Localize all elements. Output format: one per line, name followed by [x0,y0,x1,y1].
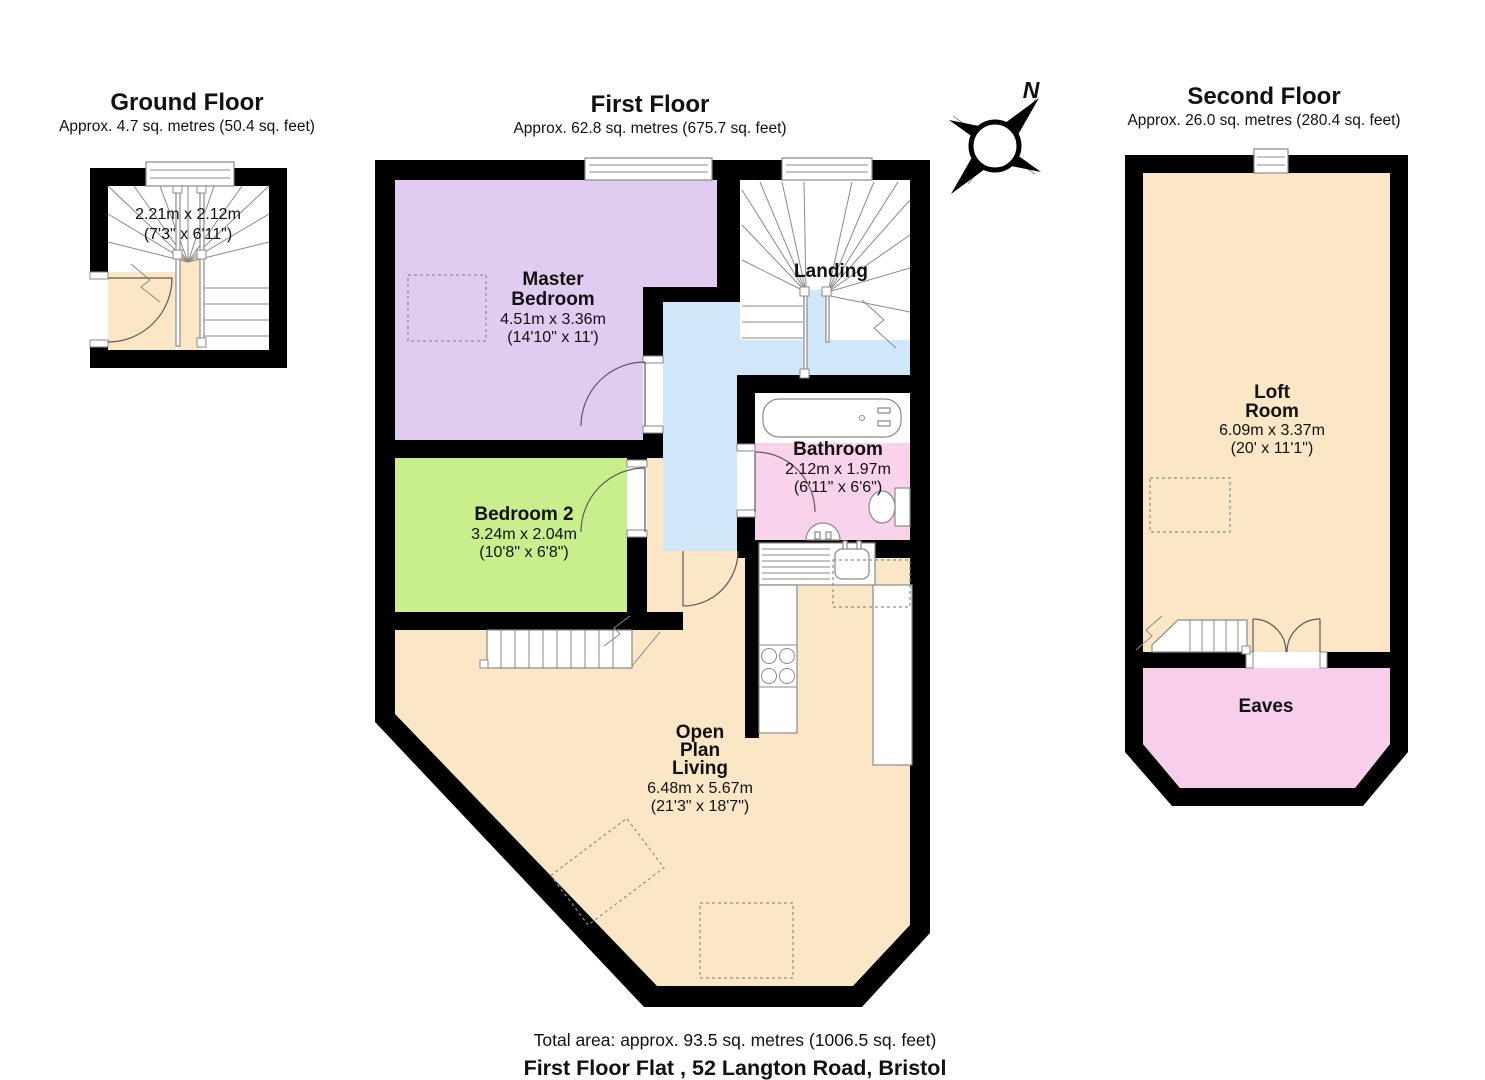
eaves-label: Eaves [1239,696,1294,717]
eaves-divider-wall [1143,652,1390,668]
compass-circle [971,122,1019,170]
bedroom2-label: Bedroom 2 [474,504,573,525]
floorplan-page: Ground Floor Approx. 4.7 sq. metres (50.… [0,0,1485,1080]
second-floor-plan: Second Floor Approx. 26.0 sq. metres (28… [1125,83,1408,806]
master-bedroom-label-1: Master [522,269,584,290]
open-plan-label-3: Living [672,758,728,779]
master-bedroom-dims-ft: (14'10" x 11') [507,329,599,346]
first-floor-area: Approx. 62.8 sq. metres (675.7 sq. feet) [513,120,786,137]
bedroom2-dims-m: 3.24m x 2.04m [471,526,577,543]
loft-room-label-1: Loft [1254,382,1291,403]
compass-north-label: N [1023,77,1040,103]
bathtub [763,399,901,437]
address-text: First Floor Flat , 52 Langton Road, Bris… [524,1056,947,1080]
ground-hall-floor [108,272,176,350]
floorplan-canvas: Ground Floor Approx. 4.7 sq. metres (50.… [0,0,1485,1080]
master-bedroom-dims-m: 4.51m x 3.36m [500,311,606,328]
loft-room-label-2: Room [1245,401,1299,422]
hallway-floor [663,287,740,551]
eaves-floor [1143,668,1390,788]
kitchen-sink-unit [759,541,875,585]
ground-window [146,162,234,186]
first-floor-title: First Floor [591,91,710,118]
total-area-text: Total area: approx. 93.5 sq. metres (100… [534,1030,937,1050]
master-bedroom-label-2: Bedroom [511,289,594,310]
ground-stair-walkline [178,258,202,350]
ground-floor-plan: Ground Floor Approx. 4.7 sq. metres (50.… [59,89,315,368]
first-floor-window-master [585,158,712,180]
bathroom-dims-ft: (6'11" x 6'6") [794,479,882,496]
bathroom-dims-m: 2.12m x 1.97m [785,461,891,478]
bathroom-label: Bathroom [793,439,883,460]
ground-floor-area: Approx. 4.7 sq. metres (50.4 sq. feet) [59,118,315,135]
ground-stair-dims-ft: (7'3" x 6'11") [144,226,232,243]
second-floor-area: Approx. 26.0 sq. metres (280.4 sq. feet) [1127,112,1400,129]
loft-room-dims-m: 6.09m x 3.37m [1219,422,1325,439]
open-plan-dims-m: 6.48m x 5.67m [647,780,753,797]
open-plan-dims-ft: (21'3" x 18'7") [651,798,749,815]
ground-floor-title: Ground Floor [110,89,263,116]
second-floor-window [1254,149,1288,173]
kitchen-hob-counter [759,585,797,733]
kitchen-right-counter [873,585,912,765]
second-floor-title: Second Floor [1187,83,1340,110]
first-floor-window-landing [782,158,872,180]
bedroom2-dims-ft: (10'8" x 6'8") [479,544,569,561]
ground-stair-dims-m: 2.21m x 2.12m [135,206,241,223]
loft-room-dims-ft: (20' x 11'1") [1231,440,1314,457]
landing-label: Landing [794,261,868,282]
